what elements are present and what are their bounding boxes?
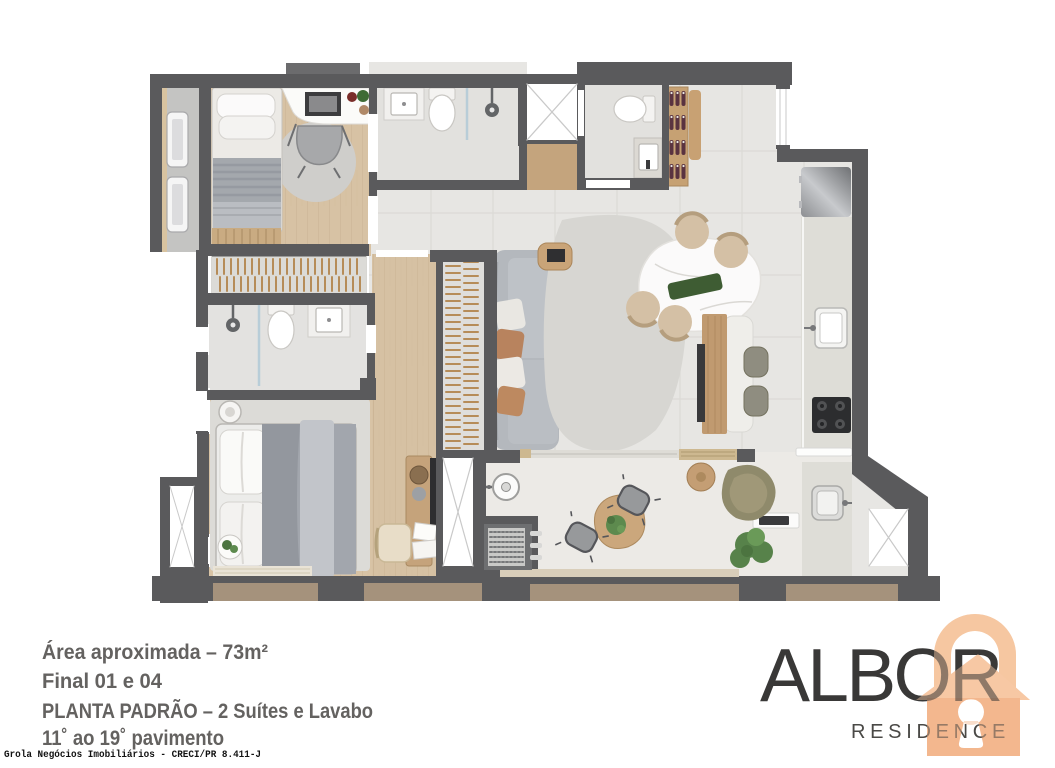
svg-text:Grola Negócios Imobiliários -: Grola Negócios Imobiliários - CRECI/PR 8… [4, 749, 261, 761]
svg-text:11˚ ao 19˚ pavimento: 11˚ ao 19˚ pavimento [42, 727, 224, 750]
svg-text:PLANTA PADRÃO – 2 Suítes e Lav: PLANTA PADRÃO – 2 Suítes e Lavabo [42, 700, 373, 723]
svg-text:Final 01 e 04: Final 01 e 04 [42, 670, 162, 693]
svg-text:Área aproximada – 73m²: Área aproximada – 73m² [42, 641, 268, 664]
